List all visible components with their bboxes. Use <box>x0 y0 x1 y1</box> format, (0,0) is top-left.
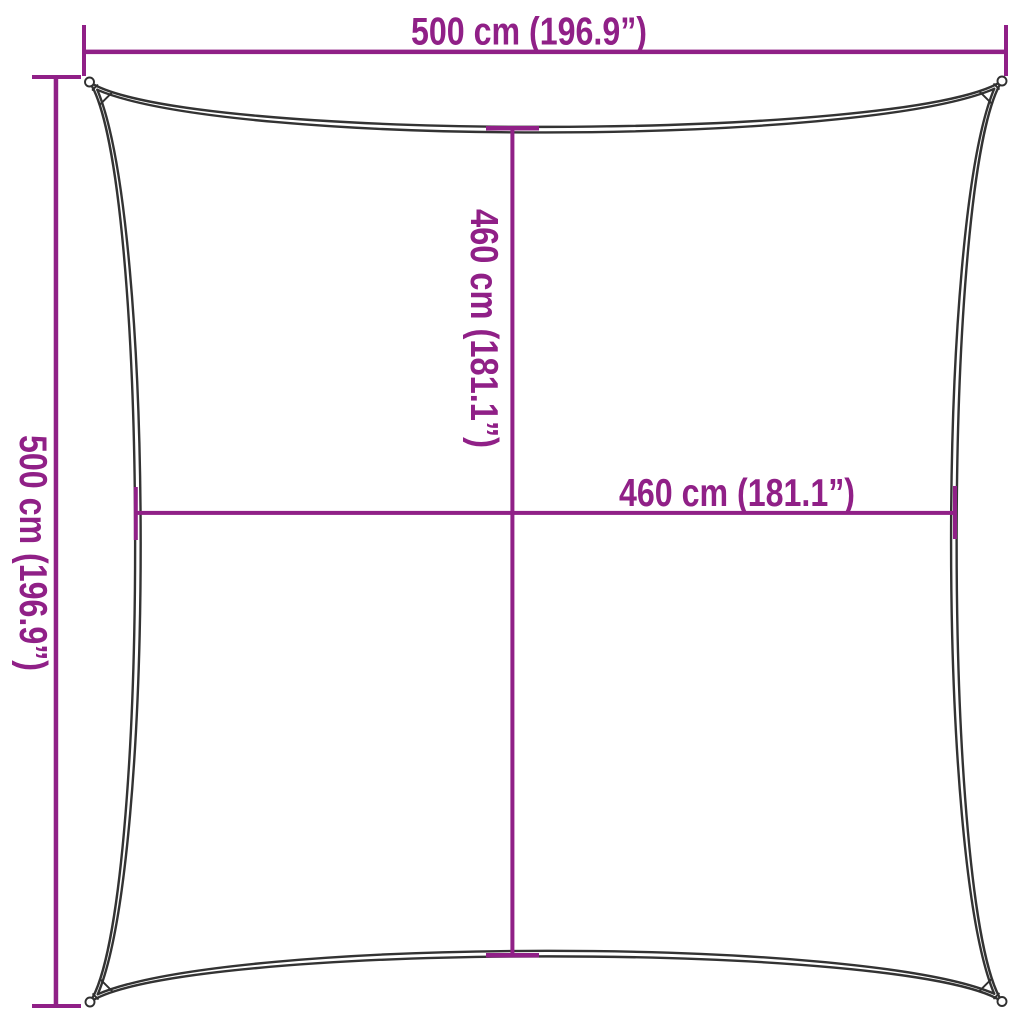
svg-text:460 cm (181.1”): 460 cm (181.1”) <box>619 472 855 515</box>
svg-text:500 cm (196.9”): 500 cm (196.9”) <box>11 435 54 671</box>
svg-text:500 cm (196.9”): 500 cm (196.9”) <box>411 11 647 54</box>
svg-text:460 cm (181.1”): 460 cm (181.1”) <box>462 209 505 448</box>
